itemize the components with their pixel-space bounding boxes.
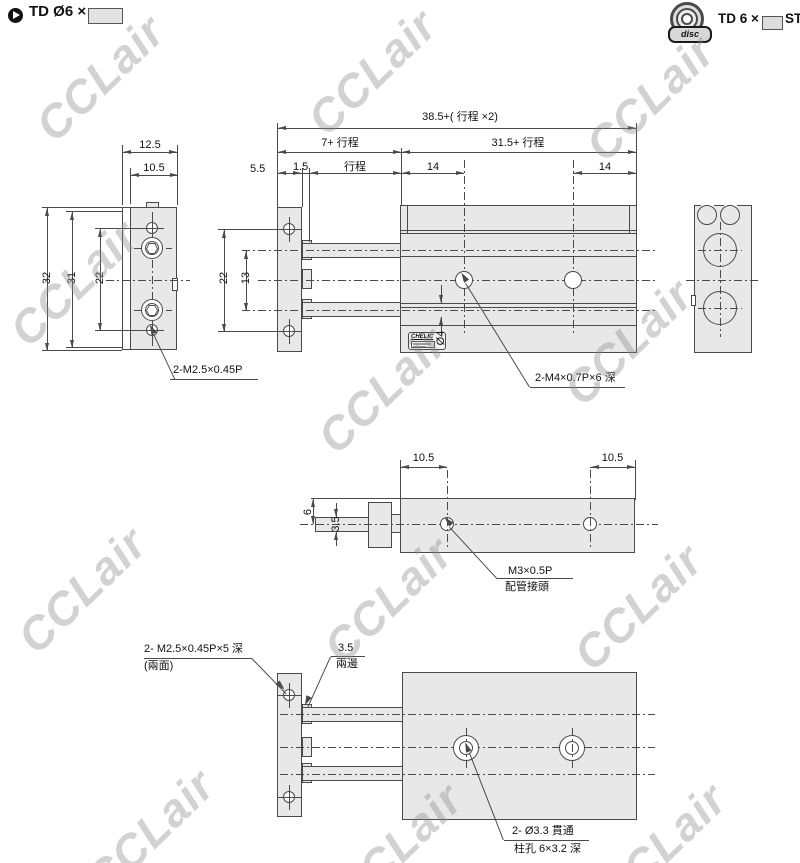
dim-arrow [401, 465, 409, 469]
centerline [590, 470, 591, 547]
dim-head-side: 7+ 行程 [300, 137, 380, 149]
bottom-view-body [402, 672, 637, 820]
label-end-tap: 2-M2.5×0.45P [173, 364, 242, 376]
dim-12-5: 12.5 [134, 139, 166, 151]
centerline [280, 714, 655, 715]
dim-arrow [402, 171, 410, 175]
dim-arrow [278, 126, 286, 130]
piston-rod-collar [302, 269, 312, 289]
label-underline [504, 840, 589, 841]
stroke-blank-box-right [762, 16, 783, 30]
dim-rod-end-dia: 3.5 [330, 509, 342, 539]
centerline [242, 250, 657, 251]
label-plate-tap: 2- M2.5×0.45P×5 深 [144, 643, 243, 655]
ext-line [277, 123, 278, 207]
top-view-plate [368, 502, 392, 548]
m4-mounting-hole [564, 271, 582, 289]
dim-arrow [628, 126, 636, 130]
centerline [686, 280, 758, 281]
nameplate-field [411, 341, 435, 348]
label-counterbore: 柱孔 6×3.2 深 [514, 843, 581, 855]
section-bullet-icon [8, 8, 23, 23]
ext-line [636, 123, 637, 205]
watermark: CCLair [563, 533, 713, 681]
centerline [572, 728, 573, 768]
centerline [300, 524, 658, 525]
nameplate-text-bar [413, 346, 426, 348]
dim-arrow [70, 340, 74, 348]
hole-crosshair [277, 695, 302, 696]
centerline [698, 250, 742, 251]
label-port-name: 配管接頭 [505, 581, 549, 593]
catalog-drawing-page: CCLair CCLair CCLair CCLair CCLair CCLai… [0, 0, 800, 863]
sensor-groove [720, 205, 740, 225]
dim-collar-width: 1.5 [293, 161, 308, 173]
dim-22: 22 [94, 263, 106, 293]
dim-line [401, 173, 464, 174]
dim-rod-dia: Ø4 [435, 323, 447, 353]
leader-line [307, 657, 331, 708]
arrow-glyph [13, 11, 24, 19]
dim-arrow [456, 171, 464, 175]
centerline [447, 470, 448, 547]
dim-arrow [244, 251, 248, 259]
hole-crosshair [277, 331, 302, 332]
label-underline [331, 656, 365, 657]
ext-line [42, 207, 122, 208]
dim-arrow [628, 150, 636, 154]
dim-14-right: 14 [586, 161, 624, 173]
dim-arrow [393, 171, 401, 175]
dim-rod-pitch: 13 [240, 263, 252, 293]
label-underline [497, 578, 573, 579]
centerline [573, 160, 574, 335]
model-suffix: ST [785, 13, 800, 25]
page-title: TD Ø6 × [29, 6, 86, 18]
ext-line [218, 229, 278, 230]
dim-32: 32 [41, 263, 53, 293]
dim-arrow [169, 150, 177, 154]
nameplate-text-bar [413, 343, 431, 345]
ext-line [122, 145, 123, 205]
dim-arrow [123, 150, 131, 154]
ext-line [66, 347, 122, 348]
body-line [401, 303, 636, 304]
dim-arrow [393, 150, 401, 154]
dim-arrow [402, 150, 410, 154]
dim-arrow [222, 230, 226, 238]
ext-line [42, 350, 122, 351]
label-both-sides: 兩邊 [336, 658, 358, 670]
stroke-blank-box [88, 8, 123, 24]
dim-arrow [244, 303, 248, 311]
label-underline [144, 658, 252, 659]
dim-arrow [45, 343, 49, 351]
dim-arrow [278, 171, 286, 175]
body-line [401, 233, 636, 234]
body-line [401, 256, 636, 257]
label-both-faces: (兩面) [144, 660, 173, 672]
dim-arrow [439, 465, 447, 469]
ext-line [95, 228, 145, 229]
dim-port-offset-right: 10.5 [590, 452, 635, 464]
dim-arrow [278, 150, 286, 154]
disc-badge: disc [668, 26, 712, 43]
dim-hole-pitch: 22 [218, 263, 230, 293]
body-line [629, 205, 630, 233]
dim-arrow [98, 229, 102, 237]
body-line [407, 205, 408, 233]
label-underline [170, 379, 258, 380]
watermark: CCLair [297, 0, 447, 146]
dim-arrow [98, 323, 102, 331]
dim-body-side: 31.5+ 行程 [468, 137, 568, 149]
disc-inner-ring [681, 13, 693, 25]
dim-arrow [591, 465, 599, 469]
hole-crosshair [277, 797, 302, 798]
dim-port-offset-left: 10.5 [400, 452, 447, 464]
ext-line [309, 168, 310, 242]
hole-crosshair [277, 229, 302, 230]
centerline [242, 310, 657, 311]
dim-line [277, 152, 637, 153]
dim-31: 31 [66, 263, 78, 293]
watermark: CCLair [75, 758, 225, 863]
label-through-hole: 2- Ø3.3 貫通 [512, 825, 574, 837]
watermark: CCLair [7, 516, 157, 664]
dim-10-5: 10.5 [136, 162, 172, 174]
dim-stroke: 行程 [332, 161, 378, 173]
watermark: CCLair [25, 4, 175, 152]
dim-line [277, 128, 637, 129]
body-line [401, 230, 636, 231]
label-port-thread: M3×0.5P [508, 565, 552, 577]
sensor-groove [697, 205, 717, 225]
centerline [464, 160, 465, 335]
label-mounting-tap: 2-M4×0.7P×6 深 [535, 372, 616, 384]
right-view-body [694, 205, 752, 353]
model-code: TD 6 × [718, 13, 759, 25]
dim-arrow [70, 212, 74, 220]
dim-14-left: 14 [414, 161, 452, 173]
ext-line [311, 498, 400, 499]
dim-arrow [310, 171, 318, 175]
dim-line [309, 173, 402, 174]
left-view-top-notch [146, 202, 159, 208]
dim-plate-thickness: 5.5 [250, 163, 265, 175]
dim-arrow [628, 171, 636, 175]
ext-line [635, 460, 636, 500]
nameplate-brand: CHELIC [411, 333, 433, 341]
centerline [280, 774, 655, 775]
watermark: CCLair [575, 24, 725, 172]
ext-line [401, 148, 402, 205]
ext-line [95, 330, 145, 331]
dim-collar-3-5: 3.5 [338, 642, 353, 654]
dim-arrow [222, 324, 226, 332]
dim-arrow [574, 171, 582, 175]
disc-icon: disc [666, 1, 714, 41]
body-line [401, 307, 636, 308]
dim-arrow [439, 295, 443, 303]
dim-rod-offset: 6 [302, 502, 314, 522]
ext-line [66, 211, 122, 212]
ext-line [218, 331, 278, 332]
dim-arrow [45, 208, 49, 216]
dim-arrow [627, 465, 635, 469]
label-underline [530, 387, 625, 388]
top-view-body [400, 498, 635, 553]
dim-total: 38.5+( 行程 ×2) [390, 111, 530, 123]
centerline [698, 308, 742, 309]
right-view-notch [691, 295, 696, 306]
centerline [106, 280, 190, 281]
